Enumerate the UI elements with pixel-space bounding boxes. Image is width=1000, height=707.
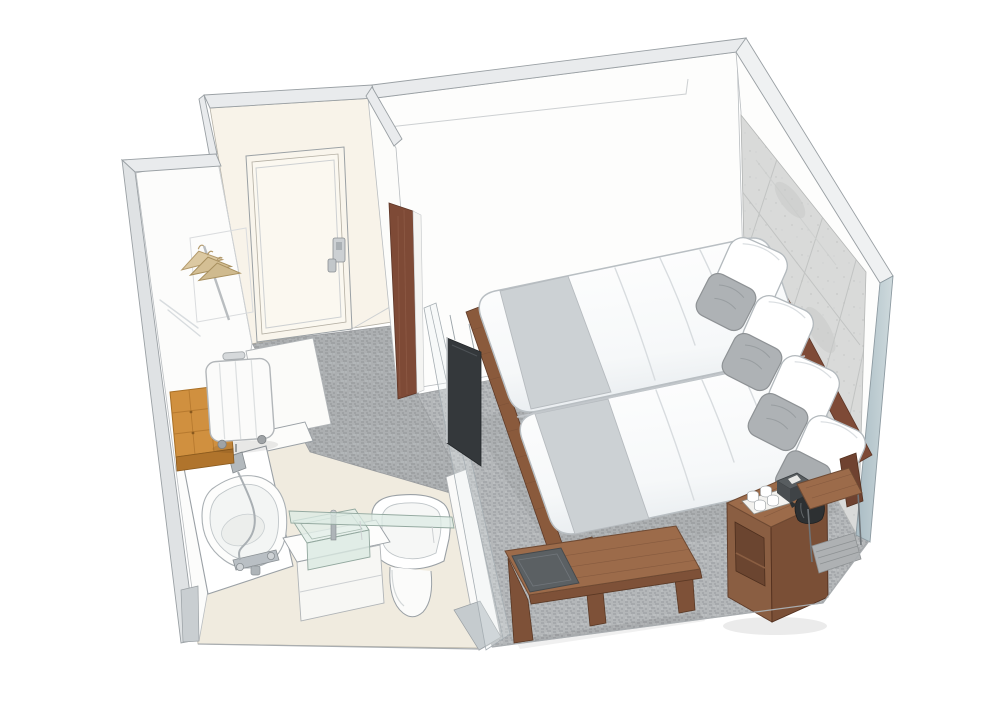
suitcase-handle	[223, 352, 245, 361]
door-handle	[328, 259, 336, 272]
west-wall-base	[181, 586, 199, 642]
room-cutaway-svg	[0, 0, 1000, 707]
suitcase-wheel	[257, 435, 266, 444]
suitcase-wheel	[218, 440, 227, 449]
illustration-canvas	[0, 0, 1000, 707]
entrance-door	[246, 147, 352, 342]
